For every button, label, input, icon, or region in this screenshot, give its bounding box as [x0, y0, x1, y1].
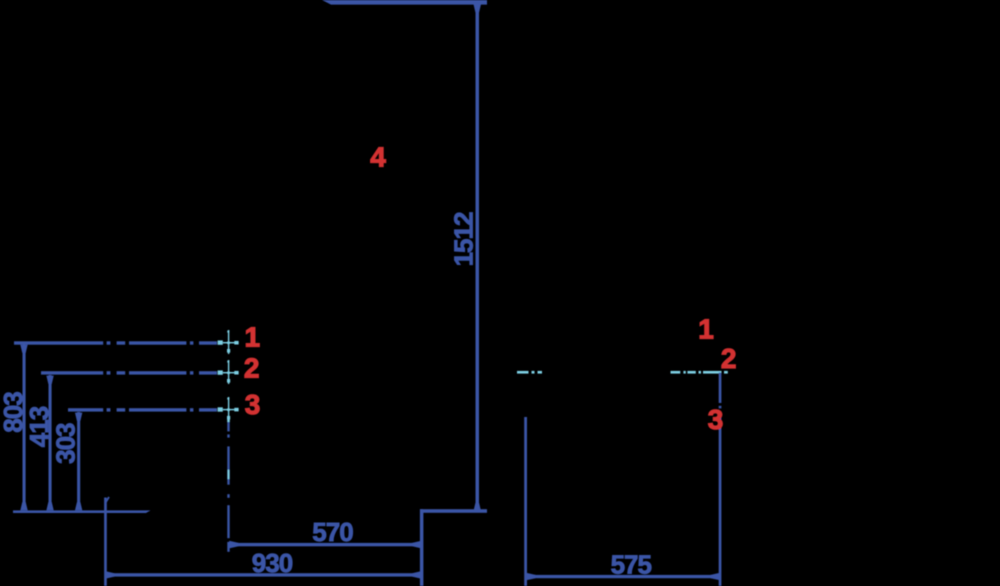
svg-text:1: 1 — [698, 313, 714, 344]
svg-text:930: 930 — [252, 548, 293, 578]
svg-text:570: 570 — [312, 517, 353, 547]
svg-text:4: 4 — [370, 141, 386, 172]
svg-text:1: 1 — [245, 321, 261, 352]
svg-text:3: 3 — [708, 404, 724, 435]
svg-text:413: 413 — [24, 406, 54, 447]
svg-text:575: 575 — [611, 550, 652, 580]
svg-text:1512: 1512 — [449, 212, 479, 266]
svg-text:303: 303 — [51, 423, 81, 464]
svg-text:2: 2 — [721, 343, 737, 374]
svg-text:3: 3 — [245, 389, 261, 420]
svg-text:2: 2 — [244, 353, 260, 384]
